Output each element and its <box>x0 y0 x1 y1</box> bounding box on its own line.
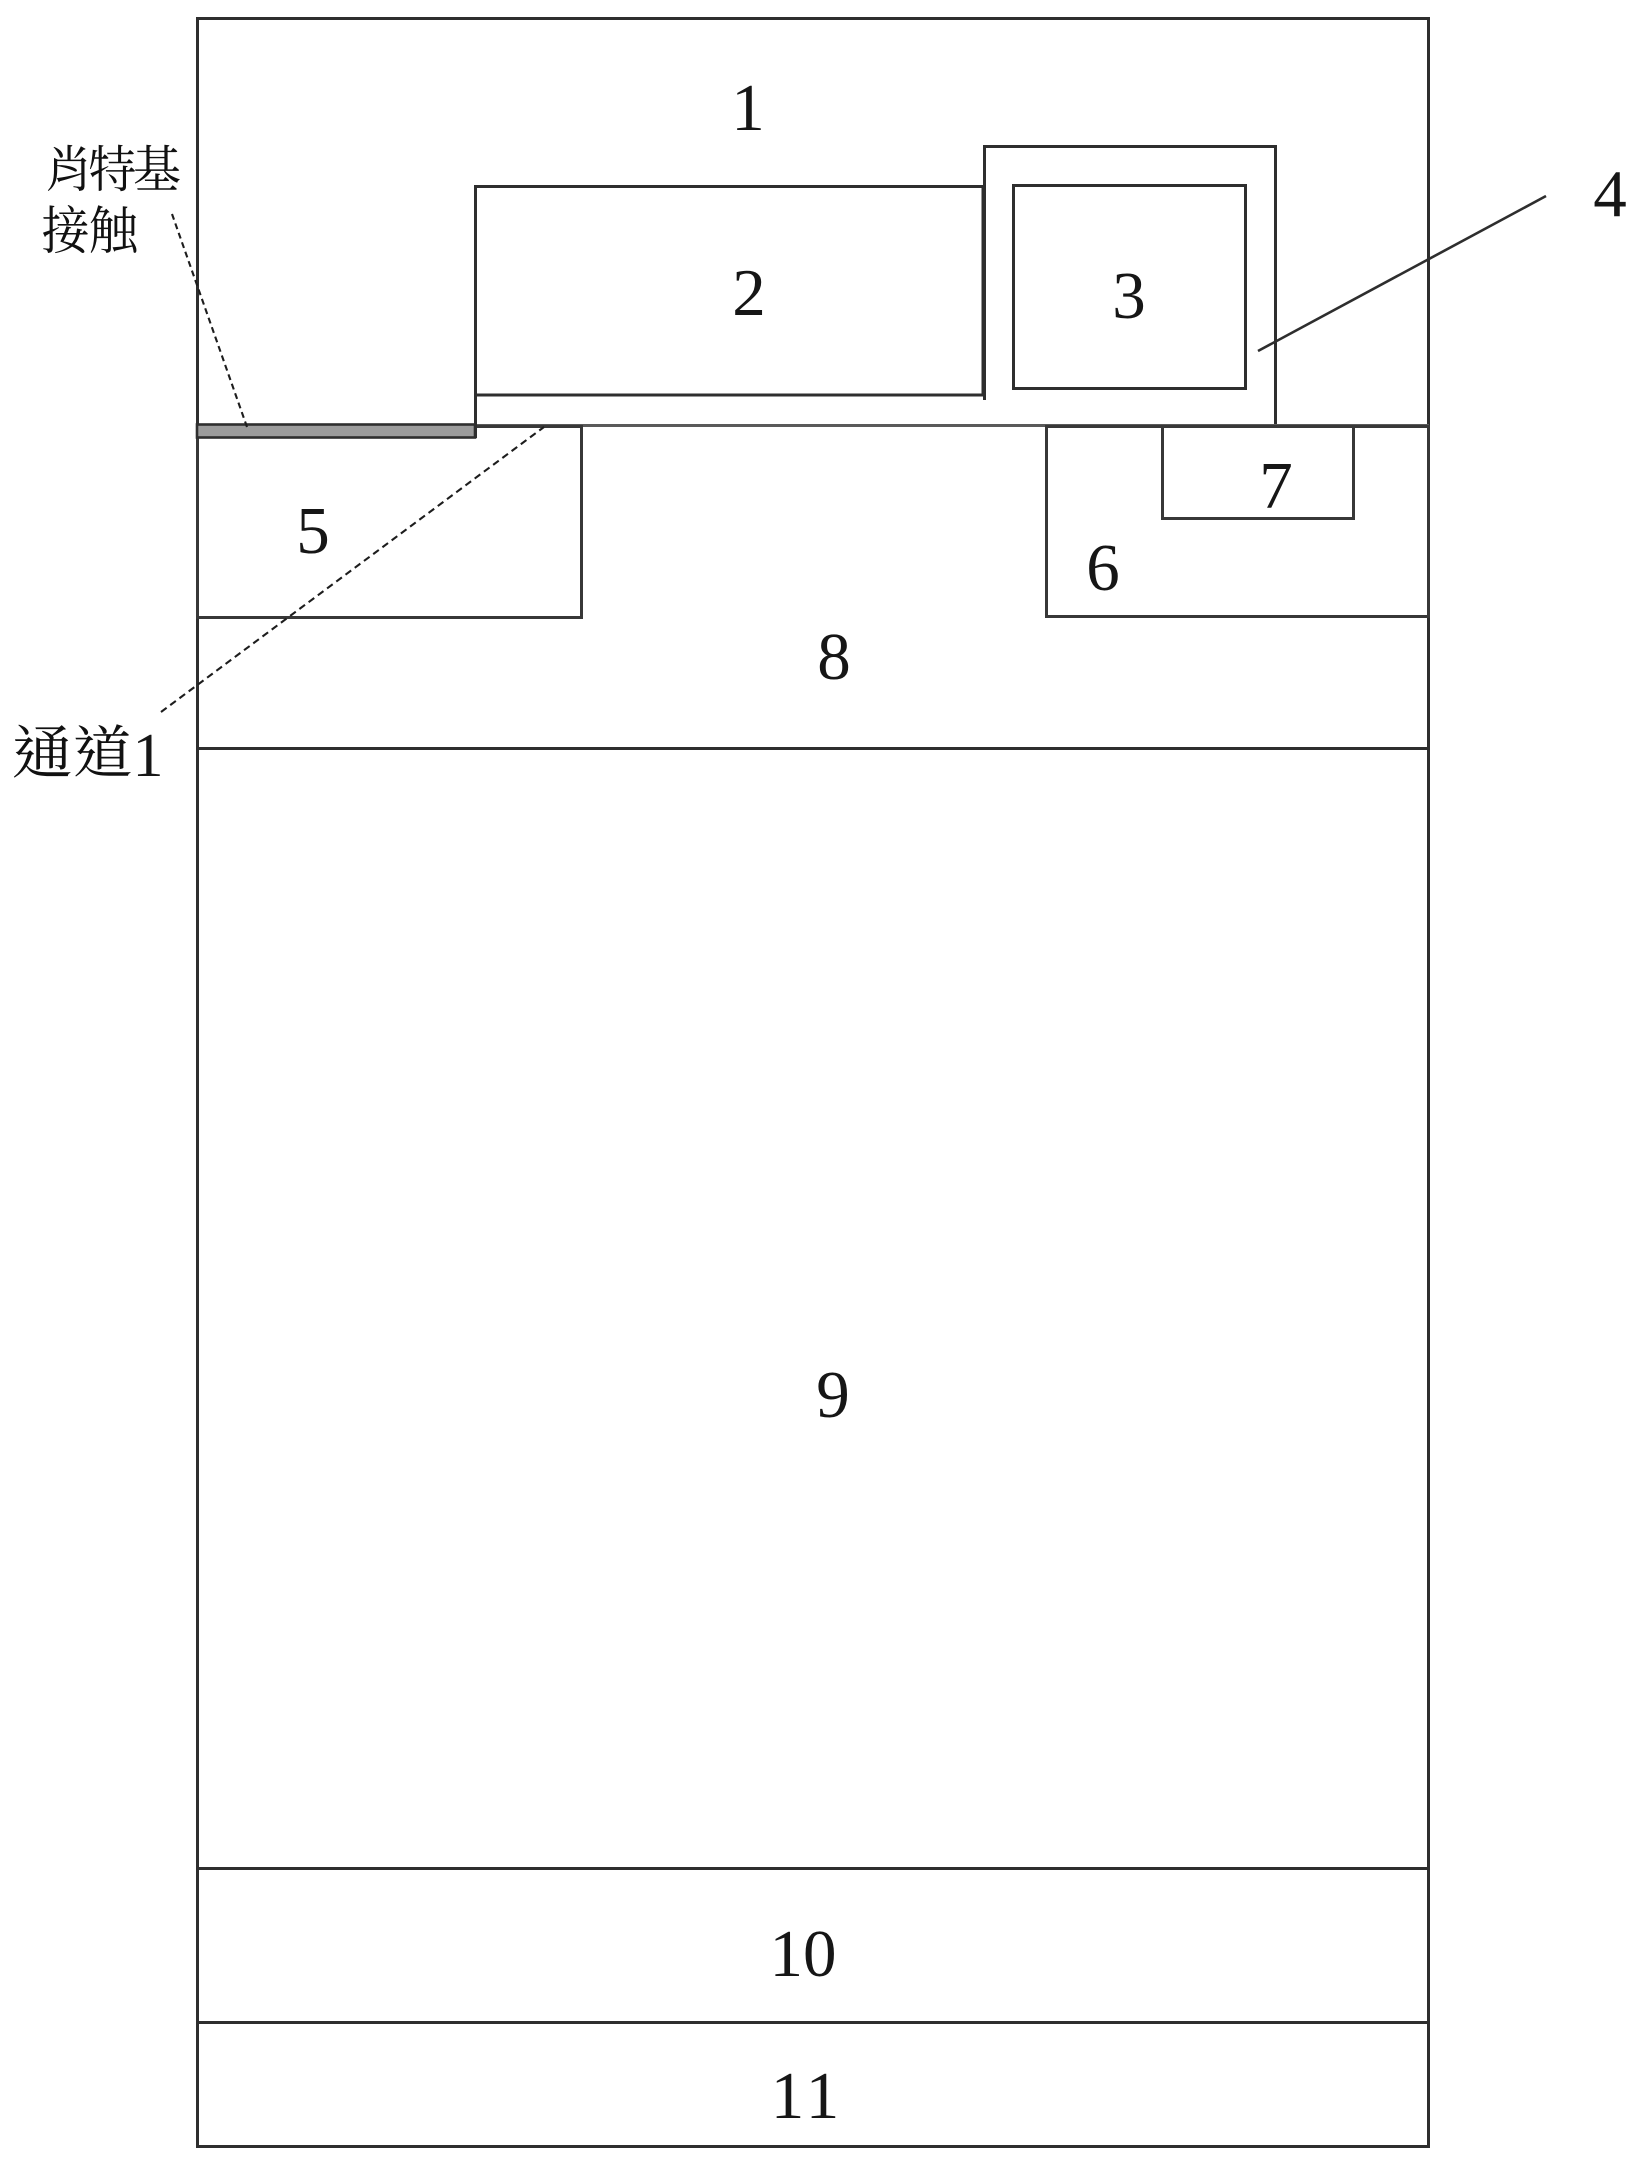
svg-text:6: 6 <box>1086 531 1120 605</box>
svg-text:1: 1 <box>133 722 164 790</box>
svg-text:8: 8 <box>817 620 851 694</box>
svg-text:11: 11 <box>771 2059 844 2133</box>
svg-text:7: 7 <box>1259 449 1293 523</box>
svg-text:2: 2 <box>732 256 766 330</box>
svg-text:1: 1 <box>731 71 765 145</box>
svg-text:3: 3 <box>1112 259 1146 333</box>
svg-text:4: 4 <box>1593 157 1627 231</box>
svg-text:5: 5 <box>296 494 330 568</box>
svg-text:10: 10 <box>770 1917 837 1991</box>
svg-text:9: 9 <box>816 1358 850 1432</box>
